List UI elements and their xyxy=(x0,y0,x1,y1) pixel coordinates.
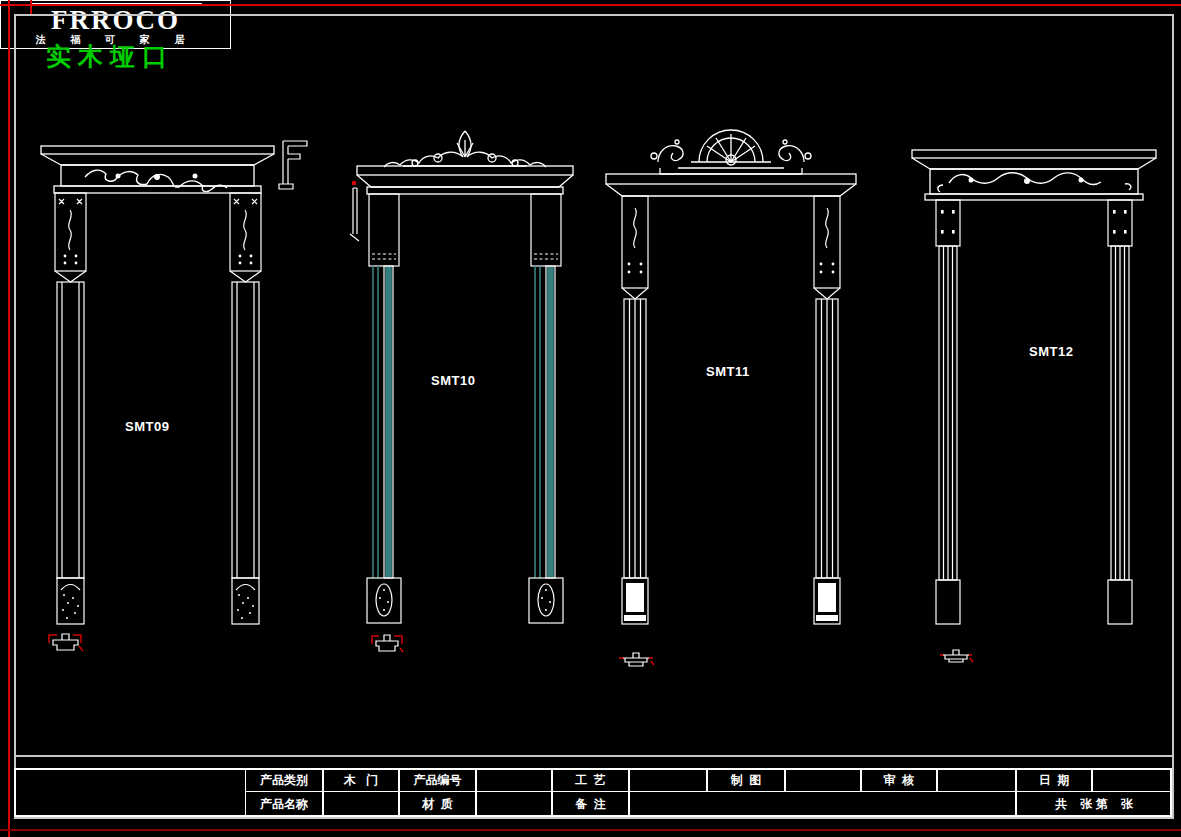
crest-carving xyxy=(384,131,546,167)
cell-remark-label: 备 注 xyxy=(552,791,629,817)
column-left xyxy=(55,193,86,624)
drawing-title: 实木垭口 xyxy=(46,40,174,73)
border-red-left xyxy=(8,0,10,837)
column-left xyxy=(622,196,648,624)
column-left xyxy=(936,200,960,624)
frame-label-smt11: SMT11 xyxy=(706,364,750,379)
molding-profile-detail-smt12-bottom xyxy=(938,646,974,666)
cornice xyxy=(606,174,856,196)
molding-profile-detail-smt10-side xyxy=(346,180,362,246)
frieze-carving xyxy=(85,170,227,191)
molding-profile-detail-smt09-top xyxy=(276,138,310,194)
cad-canvas: 实木垭口 xyxy=(0,0,1181,837)
door-elevation-smt10 xyxy=(345,126,585,671)
cell-product-name-value xyxy=(323,791,399,817)
column-left xyxy=(367,194,401,623)
molding-profile-detail-smt10-bottom xyxy=(370,632,404,660)
border-red-bottom xyxy=(0,829,1181,831)
cell-date-label: 日 期 xyxy=(1016,768,1092,792)
frame-label-smt10: SMT10 xyxy=(431,373,475,388)
cell-product-name-label: 产品名称 xyxy=(245,791,323,817)
frame-label-smt09: SMT09 xyxy=(125,419,169,434)
cell-product-category-value: 木 门 xyxy=(323,768,399,792)
cornice xyxy=(912,150,1156,200)
cell-craft-label: 工 艺 xyxy=(552,768,629,792)
frieze-carving xyxy=(938,173,1131,192)
cell-product-category-label: 产品类别 xyxy=(245,768,323,792)
cell-material-value xyxy=(476,791,552,817)
column-right xyxy=(230,193,261,624)
border-red-corner-tick xyxy=(30,0,32,15)
column-right xyxy=(529,194,563,623)
door-elevation-smt12 xyxy=(903,138,1165,668)
cell-product-code-label: 产品编号 xyxy=(399,768,476,792)
cell-sheet-count: 共 张 第 张 xyxy=(1016,791,1172,817)
cell-review-value xyxy=(937,768,1016,792)
cell-drafting-label: 制 图 xyxy=(707,768,785,792)
cell-drafting-value xyxy=(785,768,861,792)
molding-profile-detail-smt09-bottom xyxy=(46,630,84,660)
cornice xyxy=(357,166,573,194)
crest-carving xyxy=(651,130,811,174)
cell-review-label: 审 核 xyxy=(861,768,937,792)
cell-remark-value xyxy=(629,791,1016,817)
frame-label-smt12: SMT12 xyxy=(1029,344,1073,359)
cornice xyxy=(41,146,274,193)
column-right xyxy=(1108,200,1132,624)
cell-material-label: 材 质 xyxy=(399,791,476,817)
door-elevation-smt09 xyxy=(40,140,276,670)
column-right xyxy=(814,196,840,624)
cell-date-value xyxy=(1092,768,1172,792)
door-elevation-smt11 xyxy=(598,112,864,672)
molding-profile-detail-smt11-bottom xyxy=(617,648,655,670)
cell-craft-value xyxy=(629,768,707,792)
cell-product-code-value xyxy=(476,768,552,792)
title-block-top-rule xyxy=(14,755,1172,757)
border-red-top xyxy=(0,4,1181,6)
